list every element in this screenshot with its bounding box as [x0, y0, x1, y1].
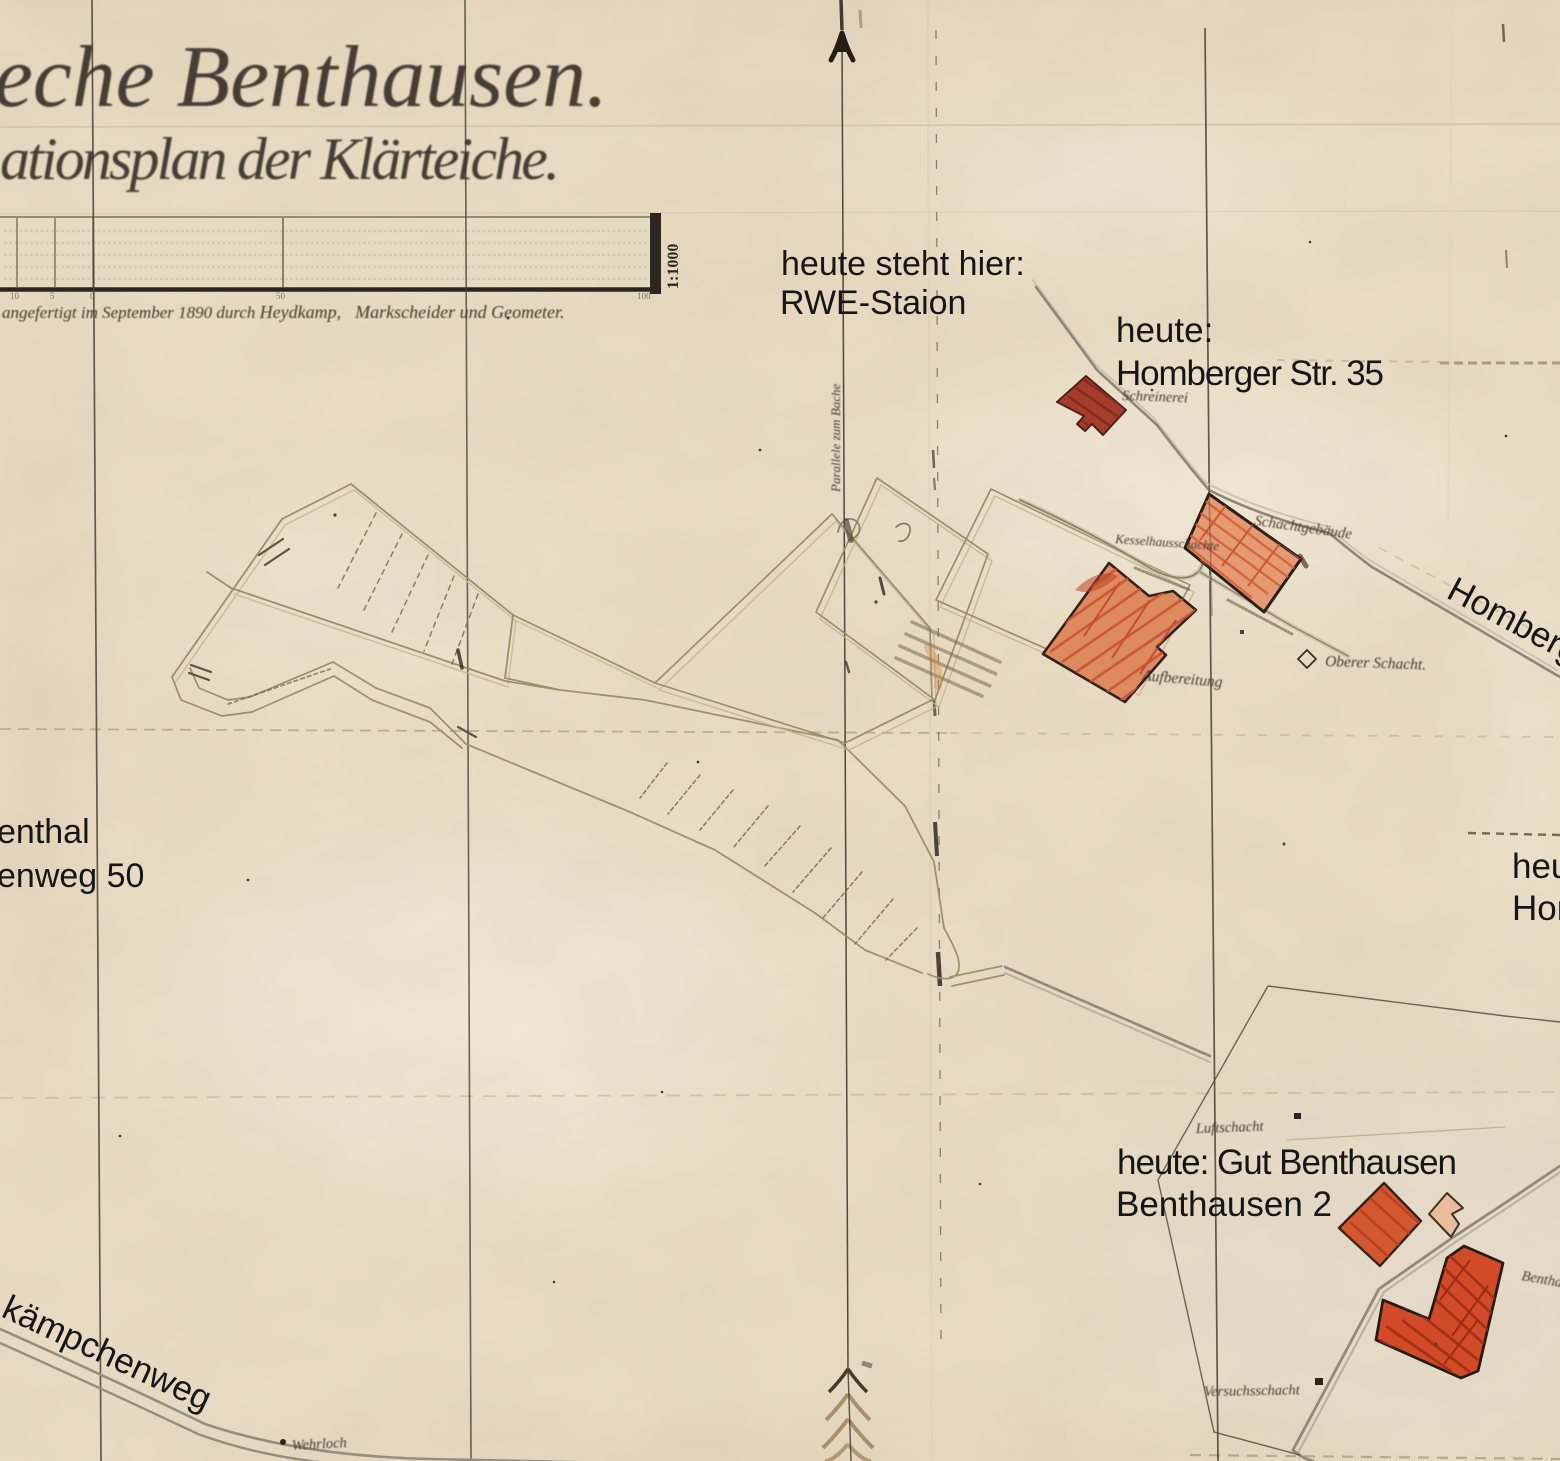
svg-text:10: 10	[10, 291, 20, 301]
svg-text:Oberer Schacht.: Oberer Schacht.	[1325, 653, 1427, 674]
svg-text:heute:: heute:	[1116, 311, 1213, 350]
svg-text:Zeche Benthausen.: Zeche Benthausen.	[0, 29, 608, 126]
svg-text:heute: Gut Benthausen: heute: Gut Benthausen	[1117, 1143, 1457, 1182]
svg-text:enthal: enthal	[0, 813, 90, 851]
svg-text:Luftschacht: Luftschacht	[1195, 1119, 1265, 1137]
svg-text:RWE-Staion: RWE-Staion	[780, 284, 966, 322]
svg-text:Wehrloch: Wehrloch	[291, 1435, 347, 1454]
svg-text:Benthausen 2: Benthausen 2	[1116, 1185, 1332, 1224]
svg-text:Homberger Str. 35: Homberger Str. 35	[1116, 354, 1384, 393]
svg-text:heute steht hier:: heute steht hier:	[781, 245, 1025, 283]
svg-text:Horberger: Horberger	[1512, 889, 1560, 928]
svg-text:ationsplan der Klärteiche.: ationsplan der Klärteiche.	[0, 126, 560, 192]
svg-text:Versuchsschacht: Versuchsschacht	[1204, 1382, 1301, 1400]
svg-text:50: 50	[276, 291, 286, 301]
svg-text:heute:: heute:	[1512, 847, 1560, 886]
svg-text:enweg 50: enweg 50	[0, 857, 144, 895]
svg-text:Parallele zum Bache: Parallele zum Bache	[828, 383, 843, 493]
svg-text:5: 5	[50, 291, 55, 301]
svg-text:100: 100	[637, 291, 651, 301]
svg-text:1:1000: 1:1000	[665, 244, 682, 289]
svg-text:angefertigt im September 1890: angefertigt im September 1890 durch Heyd…	[2, 302, 565, 322]
